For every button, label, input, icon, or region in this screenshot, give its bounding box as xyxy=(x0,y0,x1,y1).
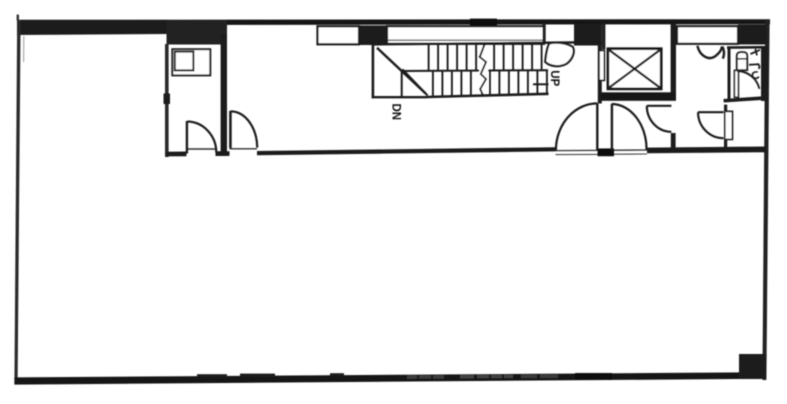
svg-text:UP: UP xyxy=(548,70,560,86)
svg-text:DN: DN xyxy=(390,104,402,121)
